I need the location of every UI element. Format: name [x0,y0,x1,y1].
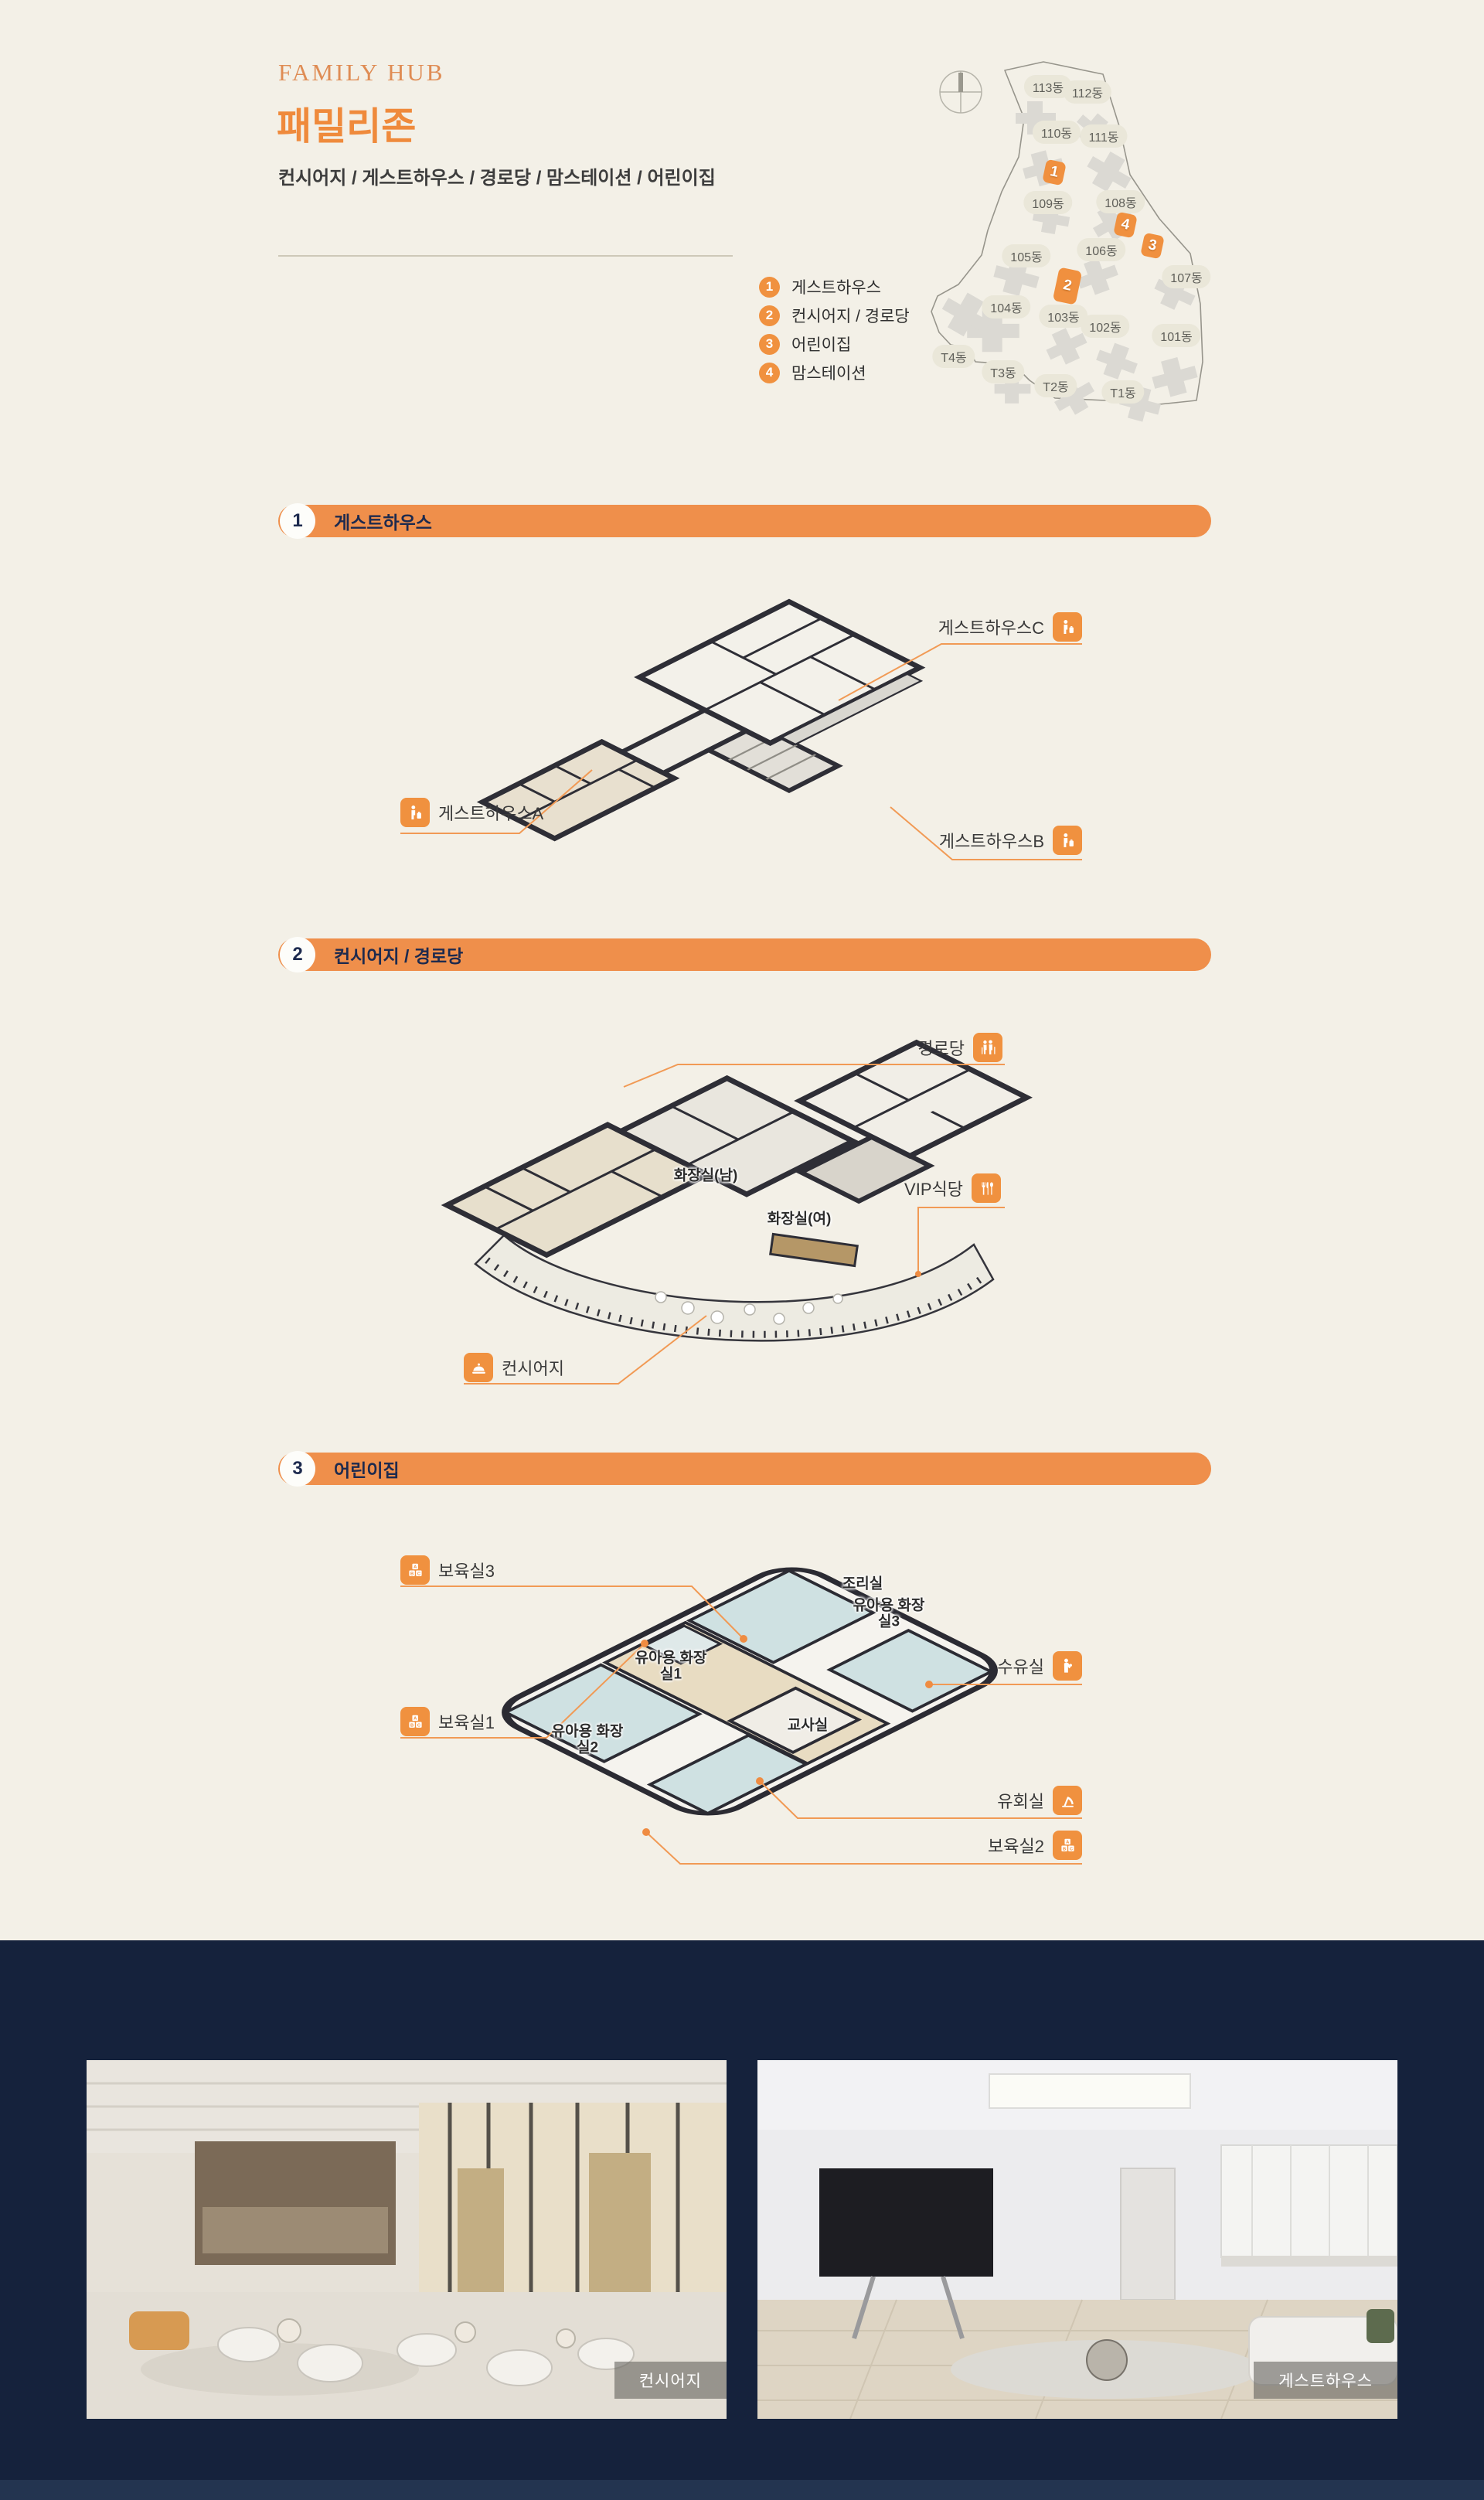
building-label: 107동 [1162,265,1210,288]
traveler-icon [1053,826,1082,855]
section-number: 2 [280,937,315,972]
compass-needle [958,73,963,92]
callout-label: 경로당 [917,1035,965,1060]
legend-num-1: 1 [759,277,780,298]
building-label: 112동 [1064,80,1111,104]
building-label: T4동 [932,345,975,368]
photo-caption: 컨시어지 [614,2362,727,2399]
legend-item-momstation: 4 맘스테이션 [759,361,910,384]
room-label-kitchen: 조리실 [842,1575,883,1592]
legend-label: 어린이집 [791,332,851,356]
callout-label: 컨시어지 [502,1355,564,1380]
callout-label: 유회실 [997,1788,1044,1813]
photo-guesthouse: 게스트하우스 [757,2060,1397,2419]
room-label-kid-toilet3: 유아용 화장실3 [852,1598,926,1631]
photo-concierge: 컨시어지 [87,2060,727,2419]
header-divider [278,255,733,257]
legend-num-2: 2 [759,305,780,326]
callout-guesthouse-c: 게스트하우스C [938,612,1082,642]
section-title: 컨시어지 / 경로당 [334,942,463,968]
map-legend: 1 게스트하우스 2 컨시어지 / 경로당 3 어린이집 4 맘스테이션 [759,275,910,384]
bell-icon [464,1353,493,1382]
callout-label: 보육실2 [988,1833,1044,1858]
section-title: 게스트하우스 [334,508,432,534]
legend-item-concierge: 2 컨시어지 / 경로당 [759,304,910,327]
room-label-toilet-m: 화장실(남) [674,1167,738,1184]
legend-label: 게스트하우스 [791,275,881,298]
daycare-floorplan [479,1523,1051,1886]
section-bar-guesthouse: 1 게스트하우스 [278,505,1211,537]
legend-item-guesthouse: 1 게스트하우스 [759,275,910,298]
building-label: 110동 [1033,121,1081,144]
legend-num-3: 3 [759,334,780,355]
legend-item-daycare: 3 어린이집 [759,332,910,356]
callout-nursery2: 보육실2 [988,1831,1082,1860]
legend-num-4: 4 [759,363,780,383]
traveler-icon [1053,612,1082,642]
callout-label: 수유실 [997,1654,1044,1678]
callout-playroom: 유회실 [997,1786,1082,1815]
section-number: 3 [280,1451,315,1487]
cutlery-icon [972,1173,1001,1203]
callout-label: 게스트하우스A [438,800,543,825]
section-eyebrow: FAMILY HUB [278,59,445,87]
section-title: 어린이집 [334,1456,400,1482]
building-label: 101동 [1152,324,1200,347]
callout-label: 게스트하우스C [938,615,1044,639]
callout-guesthouse-b: 게스트하우스B [939,826,1082,855]
building-label: 108동 [1096,190,1145,213]
building-label: 106동 [1077,238,1125,261]
callout-nursery3: 보육실3 [400,1555,495,1585]
callout-vip-dining: VIP식당 [904,1173,1001,1203]
callout-nursery1: 보육실1 [400,1707,495,1736]
legend-label: 컨시어지 / 경로당 [791,304,910,327]
family-hub-page: FAMILY HUB 패밀리존 컨시어지 / 게스트하우스 / 경로당 / 맘스… [0,0,1484,2500]
cafe-counter [771,1234,858,1265]
callout-concierge: 컨시어지 [464,1353,564,1382]
building-label: 109동 [1023,191,1072,214]
room-label-teacher: 교사실 [788,1717,828,1733]
callout-label: VIP식당 [904,1176,963,1201]
site-map: 113동 112동 110동 111동 109동 108동 105동 106동 … [920,45,1252,451]
callout-senior-center: 경로당 [917,1033,1002,1062]
abc-blocks-icon [400,1707,430,1736]
bottom-strip [0,2480,1484,2500]
building-label: 105동 [1002,244,1050,267]
legend-label: 맘스테이션 [791,361,866,384]
callout-guesthouse-a: 게스트하우스A [400,798,543,827]
photo-caption: 게스트하우스 [1254,2362,1397,2399]
callout-label: 보육실1 [438,1709,495,1734]
building-label: T1동 [1101,380,1144,404]
section-bar-daycare: 3 어린이집 [278,1453,1211,1485]
seniors-icon [973,1033,1002,1062]
callout-label: 게스트하우스B [939,828,1044,853]
abc-blocks-icon [400,1555,430,1585]
building-label: 102동 [1081,315,1129,338]
abc-blocks-icon [1053,1831,1082,1860]
page-title: 패밀리존 [277,96,416,151]
traveler-icon [400,798,430,827]
section-number: 1 [280,503,315,539]
building-label: T2동 [1034,374,1077,397]
slide-icon [1053,1786,1082,1815]
nursing-icon [1053,1651,1082,1681]
room-label-kid-toilet2: 유아용 화장실2 [550,1724,625,1757]
building-label: 104동 [982,295,1030,318]
building-label: T3동 [982,360,1024,383]
room-label-kid-toilet1: 유아용 화장실1 [634,1650,708,1684]
callout-label: 보육실3 [438,1558,495,1582]
room-label-toilet-f: 화장실(여) [768,1211,832,1227]
page-subtitle: 컨시어지 / 게스트하우스 / 경로당 / 맘스테이션 / 어린이집 [278,162,716,189]
building-label: 111동 [1080,124,1127,148]
callout-nursing-room: 수유실 [997,1651,1082,1681]
section-bar-concierge: 2 컨시어지 / 경로당 [278,938,1211,971]
